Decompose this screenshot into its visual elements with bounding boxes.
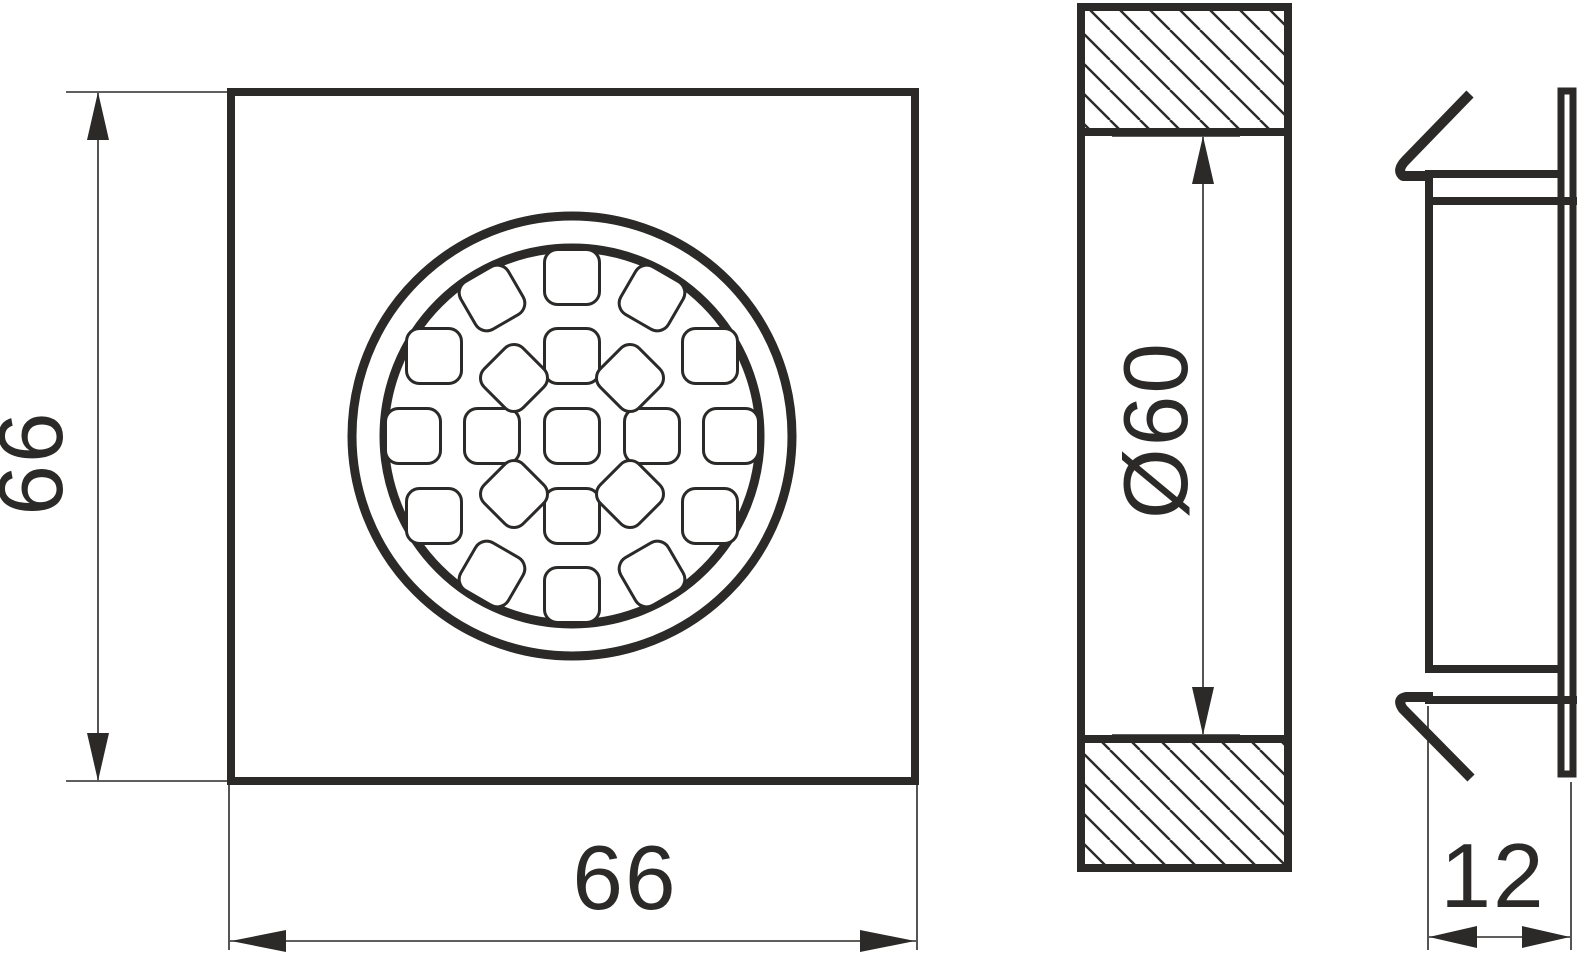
- width-dimension: 66: [229, 785, 917, 952]
- hatch-area-top: [1082, 8, 1287, 129]
- led-square: [386, 409, 441, 464]
- height-dimension-label: 66: [0, 410, 82, 515]
- arrowhead-left: [1429, 926, 1477, 948]
- spring-clip-bottom: [1400, 697, 1471, 778]
- led-square: [545, 489, 600, 544]
- side-profile-view: [1400, 91, 1577, 778]
- diameter-dimension: Ø60: [1106, 136, 1240, 735]
- led-square: [545, 568, 600, 623]
- led-square: [465, 409, 520, 464]
- spring-clip-top: [1400, 94, 1470, 176]
- drawing-canvas: 66 66 Ø60: [0, 0, 1578, 953]
- arrowhead-left: [231, 930, 286, 952]
- arrowhead-up: [87, 92, 109, 140]
- depth-dimension: 12: [1428, 706, 1571, 950]
- led-square: [625, 409, 680, 464]
- led-square: [407, 489, 462, 544]
- led-square: [683, 329, 738, 384]
- arrowhead-down: [1192, 687, 1214, 735]
- arrowhead-right: [1522, 926, 1570, 948]
- led-square: [407, 329, 462, 384]
- front-view: [231, 92, 915, 781]
- arrowhead-up: [1192, 136, 1214, 184]
- led-square: [683, 489, 738, 544]
- led-square: [545, 250, 600, 305]
- depth-dimension-label: 12: [1440, 826, 1545, 927]
- led-square: [545, 409, 600, 464]
- technical-drawing: 66 66 Ø60: [0, 0, 1578, 953]
- width-dimension-label: 66: [572, 828, 677, 929]
- height-dimension: 66: [0, 92, 227, 781]
- led-square: [704, 409, 759, 464]
- diameter-dimension-label: Ø60: [1106, 341, 1207, 519]
- led-square: [545, 329, 600, 384]
- hatch-area-bottom: [1082, 742, 1287, 868]
- arrowhead-right: [860, 930, 915, 952]
- arrowhead-down: [87, 733, 109, 781]
